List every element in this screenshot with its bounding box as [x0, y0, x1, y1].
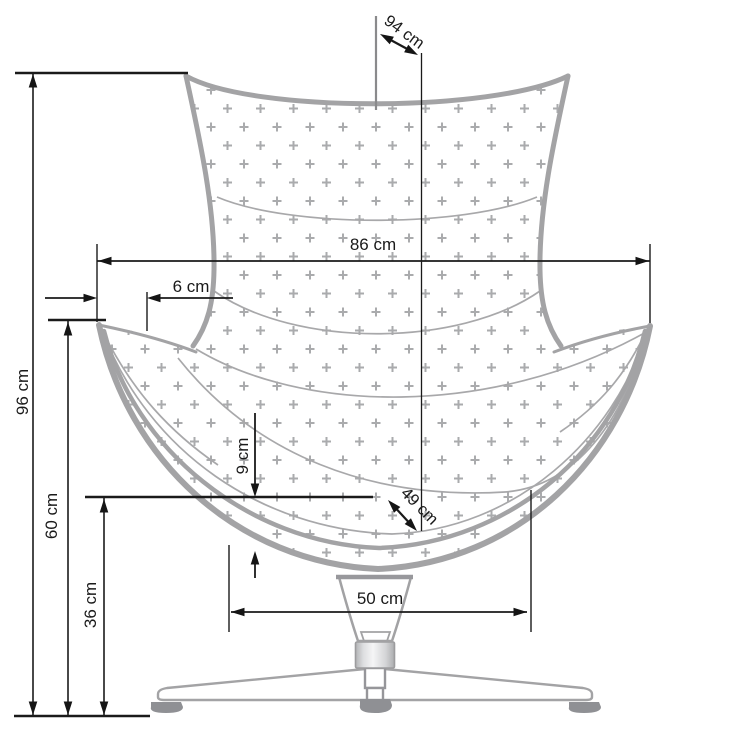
dimension-label-36: 36 cm: [81, 582, 100, 628]
dimensional-drawing: 94 cm 86 cm 6 cm 96 cm 9 cm 49 cm 60 cm …: [0, 0, 744, 736]
pedestal-neck-upper: [365, 668, 385, 688]
chair-diagram-canvas: 94 cm 86 cm 6 cm 96 cm 9 cm 49 cm 60 cm …: [0, 0, 744, 736]
base-foot-pad-left: [151, 702, 183, 713]
dimension-label-9: 9 cm: [233, 438, 252, 475]
dimension-label-96: 96 cm: [13, 369, 32, 415]
pedestal-center-foot: [360, 699, 392, 713]
chair-upholstery-pattern: [99, 76, 650, 569]
pedestal-cylinder: [356, 642, 395, 668]
dimension-label-6: 6 cm: [173, 277, 210, 296]
dimension-label-50: 50 cm: [357, 589, 403, 608]
dimension-label-86: 86 cm: [350, 235, 396, 254]
chair-shell: [99, 76, 650, 569]
base-foot-pad-right: [569, 702, 601, 713]
pedestal-neck-lower: [367, 688, 383, 700]
dimension-label-60: 60 cm: [42, 493, 61, 539]
